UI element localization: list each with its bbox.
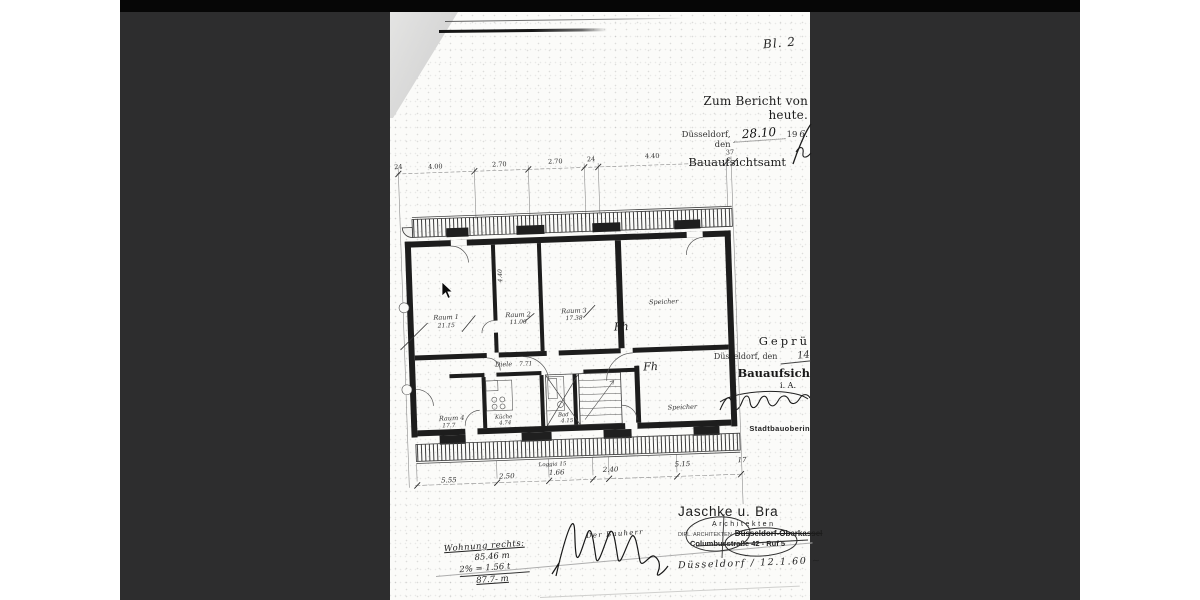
dim-label: 2.70 — [492, 160, 507, 169]
architect-row3: DIPL. ARCHITEKTEN Düsseldorf-Oberkassel — [678, 529, 810, 538]
room-area: 17.7 — [442, 422, 456, 429]
mouse-cursor — [441, 281, 454, 300]
dim-label: 24 — [394, 163, 403, 171]
kitchen-fixtures — [486, 380, 513, 411]
scan-artifact-line — [439, 28, 607, 33]
dim-label: 37 — [726, 148, 735, 156]
loggia-label: Loggia 15 — [538, 461, 567, 468]
vertical-dim: 4.40 — [497, 269, 505, 284]
staircase — [545, 372, 622, 426]
scan-black-strip — [120, 0, 1080, 12]
owner-signature — [548, 512, 670, 588]
architect-profession: Architekten — [712, 521, 810, 528]
architect-location-struck: Düsseldorf-Oberkassel — [735, 529, 823, 538]
dim-label: 5.15 — [675, 460, 691, 469]
dim-label: 2.50 — [498, 472, 515, 481]
room-area: 4.15 — [560, 418, 574, 424]
room-label: Raum 1 — [432, 313, 459, 322]
approval-handwritten-date: 14 — [779, 349, 810, 364]
architect-stamp: Jaschke u. Bra Architekten DIPL. ARCHITE… — [678, 504, 810, 569]
fh-annotation: Fh — [613, 320, 629, 334]
room-area: 4.74 — [498, 420, 512, 426]
fh-annotation: Fh — [642, 360, 658, 374]
scanner-background: Bl. 2 Zum Bericht von heute. Düsseldorf,… — [120, 0, 1080, 600]
dim-label: 4.00 — [428, 162, 443, 171]
architect-handwritten-date: Düsseldorf / 12.1.60 ~ — [678, 556, 810, 572]
architect-qualifier: DIPL. ARCHITEKTEN — [678, 532, 732, 538]
dim-label: 4.40 — [645, 152, 660, 161]
sheet-number: Bl. 2 — [763, 35, 797, 52]
floor-plan: 24 4.00 2.70 2.70 24 4.40 37 — [386, 146, 756, 518]
screenshot-stage: Bl. 2 Zum Bericht von heute. Düsseldorf,… — [0, 0, 1200, 600]
room-area: 7.71 — [519, 360, 533, 367]
dim-label: 2.70 — [548, 157, 563, 166]
scanned-page: Bl. 2 Zum Bericht von heute. Düsseldorf,… — [390, 12, 810, 600]
scan-artifact-line — [445, 18, 683, 23]
dim-label: 17 — [737, 456, 747, 464]
dim-label: 24 — [587, 155, 596, 163]
page-corner-fold — [390, 12, 458, 118]
room-label: Speicher — [668, 403, 698, 412]
dim-label: 1.66 — [549, 468, 565, 477]
room-label: Speicher — [649, 297, 679, 306]
report-line1: Zum Bericht von heute. — [668, 94, 808, 122]
signature-initials — [788, 122, 814, 166]
handwritten-date: 28.10 — [732, 124, 785, 143]
room-area: 11.06 — [510, 319, 528, 327]
dim-label: 2.40 — [602, 465, 619, 474]
room-area: 17.38 — [565, 315, 583, 323]
bath-fixtures — [546, 376, 565, 411]
architect-address: Columbusstraße 42 - Ruf 5 — [690, 539, 810, 548]
room-area: 21.15 — [437, 322, 456, 330]
dim-label: 5.55 — [441, 476, 457, 485]
door-arcs — [397, 237, 709, 428]
room-label: Diele — [494, 360, 512, 369]
